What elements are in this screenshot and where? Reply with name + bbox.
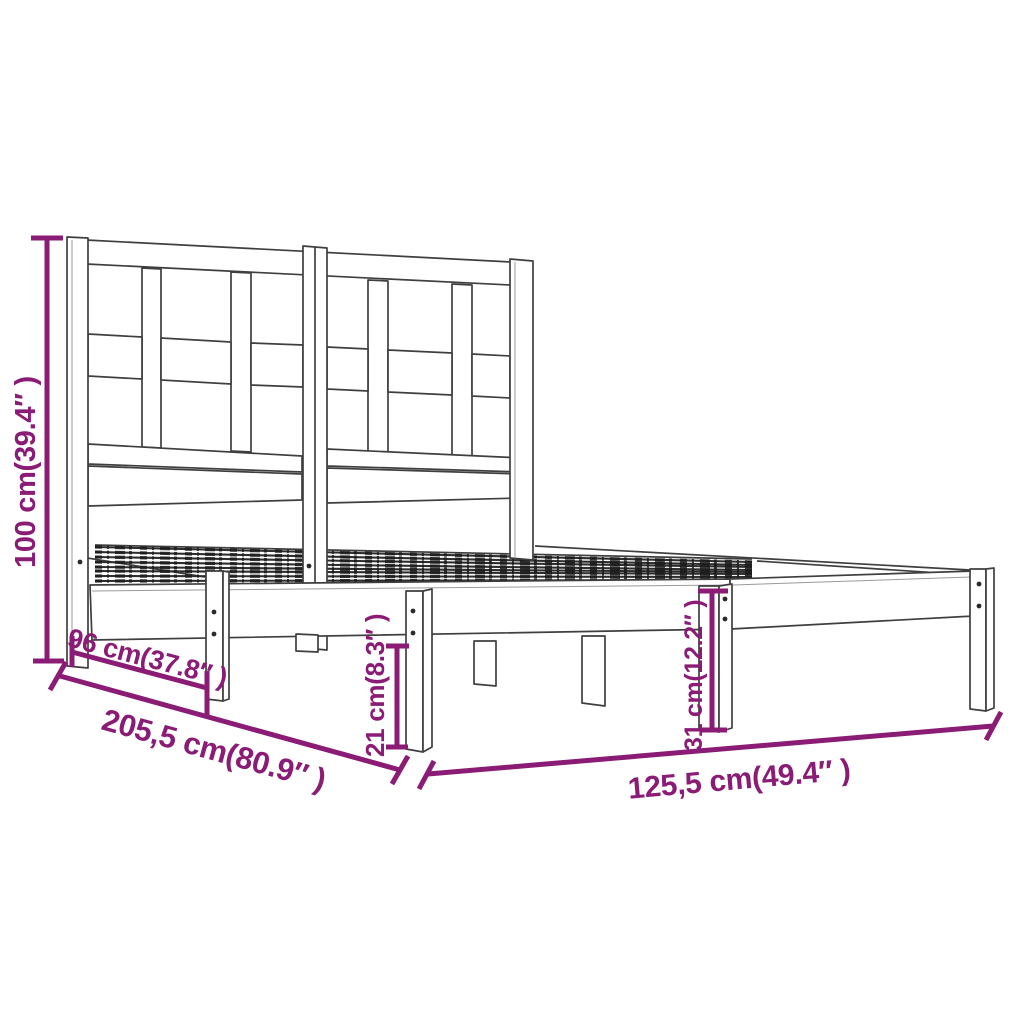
bed-frame-drawing: 100 cm(39.4″ ) 96 cm(37.8″ ) 205,5 cm(80… [0, 0, 1024, 1024]
headboard-lower-board [88, 466, 302, 506]
dimension-label: 100 cm(39.4″ ) [10, 376, 42, 568]
dimension-label: 21 cm(8.3″ ) [360, 614, 390, 757]
headboard-slat [231, 272, 251, 452]
slat-deck [95, 545, 752, 581]
screw-hole [212, 610, 217, 615]
headboard-mid-rail [88, 334, 142, 379]
leg [406, 589, 432, 752]
headboard-mid-rail [327, 347, 368, 391]
headboard-lower-board [327, 468, 522, 503]
screw-hole [78, 560, 83, 565]
screw-hole [723, 597, 728, 602]
bed-base [90, 568, 994, 752]
dimension-headboard-height: 100 cm(39.4″ ) [10, 238, 64, 661]
screw-hole [977, 604, 982, 609]
screw-hole [307, 564, 312, 569]
screw-hole [411, 631, 416, 636]
headboard-mid-rail [161, 338, 231, 384]
headboard-mid-rail [251, 343, 303, 387]
dimension-diagram: 100 cm(39.4″ ) 96 cm(37.8″ ) 205,5 cm(80… [0, 0, 1024, 1024]
screw-hole [723, 617, 728, 622]
support-leg [474, 641, 496, 686]
headboard-slat [452, 284, 472, 461]
foot-rail [730, 571, 974, 629]
headboard-right-post [510, 259, 533, 560]
screw-hole [212, 632, 217, 637]
headboard-slat [142, 268, 161, 448]
headboard-mid-rail [472, 354, 510, 398]
dimension-label: 125,5 cm(49.4″ ) [627, 753, 852, 805]
screw-hole [411, 609, 416, 614]
dimension-label: 31 cm(12.2″ ) [680, 600, 708, 751]
support-leg [296, 634, 318, 652]
headboard-slat [368, 280, 388, 457]
headboard-left-leg [67, 237, 88, 668]
headboard-mid-rail [388, 350, 452, 395]
leg [970, 568, 994, 711]
screw-hole [977, 582, 982, 587]
support-leg [582, 636, 605, 706]
